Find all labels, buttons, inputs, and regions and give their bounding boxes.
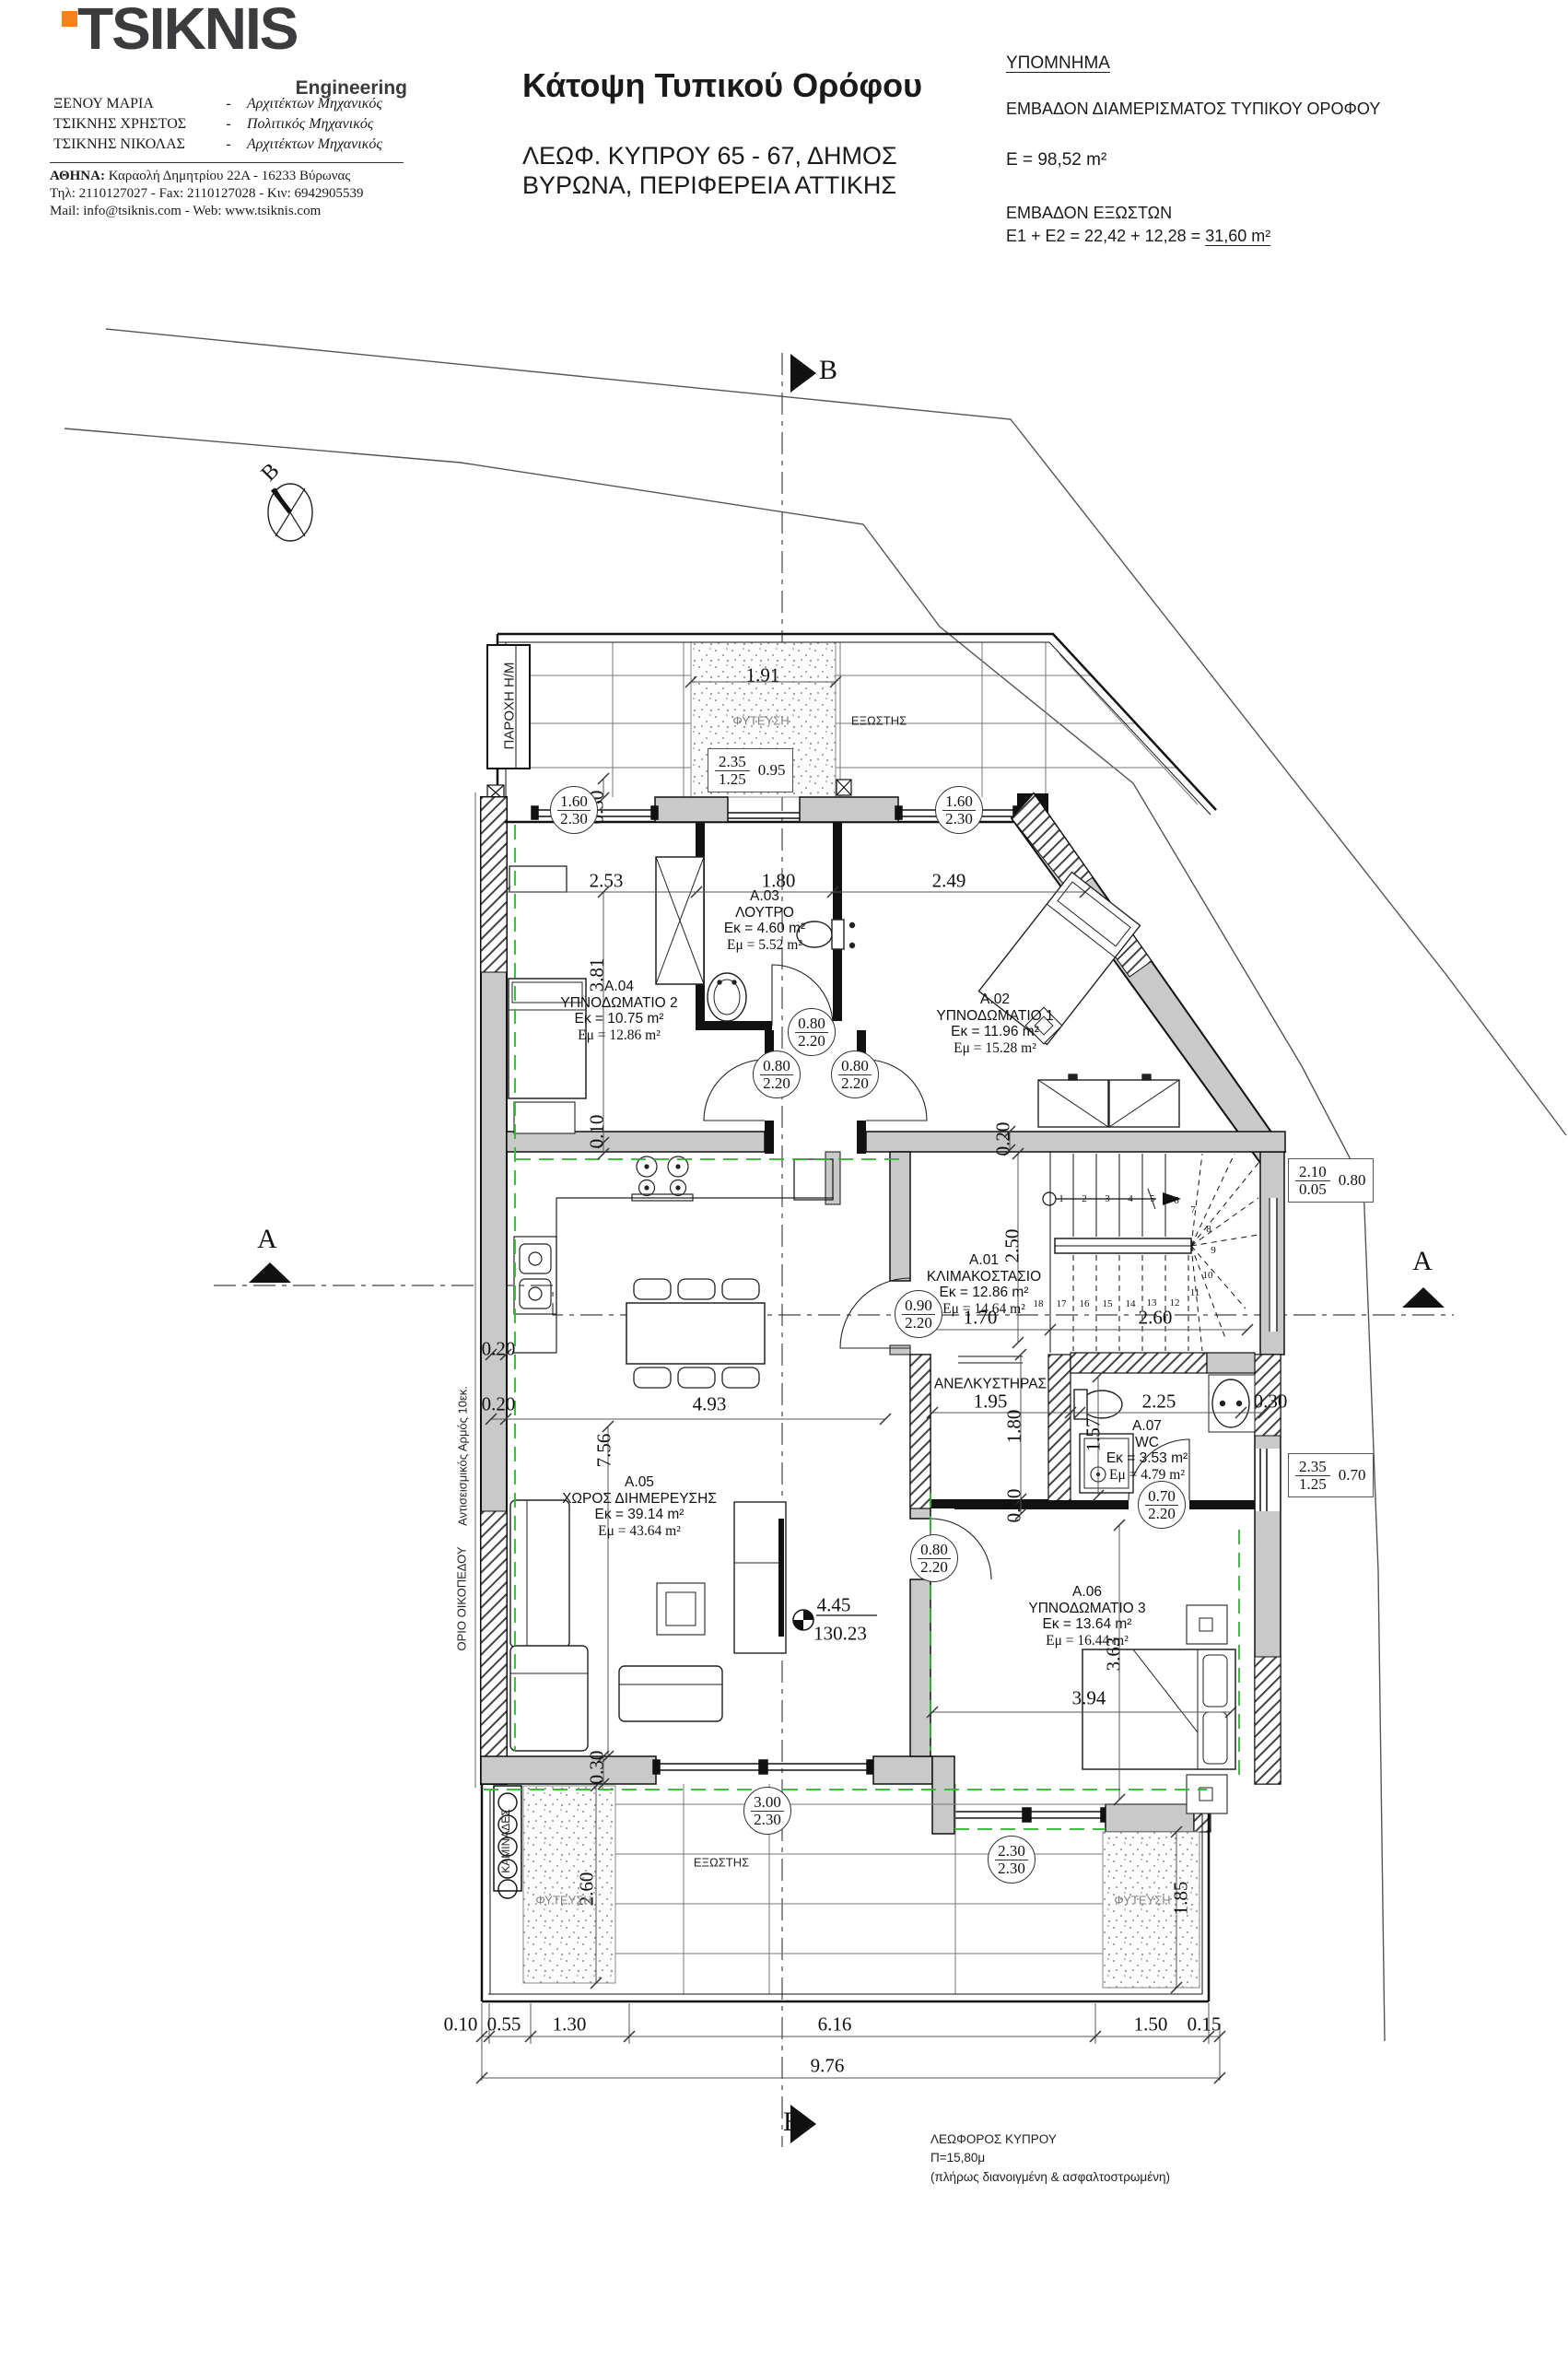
dimension-label: 3.81: [586, 958, 609, 992]
dimension-label: 9.76: [811, 2055, 845, 2078]
room-label: A.06ΥΠΝΟΔΩΜΑΤΙΟ 3Εκ = 13.64 m²Εμ = 16.44…: [1028, 1584, 1145, 1649]
dimension-label: 1.57: [1082, 1418, 1106, 1452]
section-letter: A: [1412, 1246, 1433, 1277]
annotation-label: ΦΥΤΕΥΣΗ: [535, 1894, 591, 1907]
stair-step-number: 17: [1057, 1298, 1067, 1309]
dimension-label: 130.23: [813, 1623, 867, 1646]
stair-step-number: 10: [1203, 1270, 1213, 1281]
dimension-label: 3.63: [1103, 1637, 1126, 1672]
dimension-label: 3.94: [1072, 1687, 1106, 1710]
dimension-label: 0.20: [992, 1122, 1015, 1156]
annotation-label: ΕΞΩΣΤΗΣ: [694, 1856, 749, 1870]
stair-step-number: 9: [1211, 1245, 1216, 1256]
section-letter: B: [819, 355, 837, 386]
dimension-label: 4.45: [817, 1594, 851, 1617]
dimension-label: 0.10: [586, 1115, 609, 1149]
dimension-label: 1.91: [746, 664, 780, 687]
dimension-label: 2.53: [590, 870, 624, 893]
stair-step-number: 8: [1206, 1224, 1211, 1235]
dimension-label: 1.70: [964, 1307, 998, 1330]
dimension-label: 6.16: [818, 2013, 852, 2036]
stair-step-number: 16: [1080, 1298, 1090, 1309]
opening-size-tag: 1.602.30: [935, 786, 983, 834]
opening-size-tag: 0.802.20: [788, 1008, 836, 1056]
stair-step-number: 13: [1147, 1297, 1157, 1309]
opening-size-tag: 1.602.30: [550, 786, 598, 834]
dimension-label: 1.30: [553, 2013, 587, 2036]
dimension-label: 2.25: [1142, 1391, 1176, 1414]
annotation-label: ΚΑΜΙΝΑΔΕΣ: [499, 1809, 512, 1872]
room-label: A.02ΥΠΝΟΔΩΜΑΤΙΟ 1Εκ = 11.96 m²Εμ = 15.28…: [936, 992, 1053, 1056]
window-size-tag: 2.100.050.80: [1288, 1158, 1374, 1203]
opening-size-tag: 0.802.20: [753, 1050, 801, 1098]
opening-size-tag: 0.802.20: [910, 1534, 958, 1582]
opening-size-tag: 0.902.20: [895, 1290, 942, 1338]
dimension-label: 7.56: [593, 1434, 616, 1468]
annotation-label: Αντισεισμικός Αρμός 10εκ.: [456, 1386, 470, 1526]
dimension-label: 0.20: [482, 1393, 516, 1416]
opening-size-tag: 2.302.30: [988, 1836, 1036, 1884]
opening-size-tag: 3.002.30: [743, 1787, 791, 1835]
room-label: A.07WCΕκ = 3.53 m²Εμ = 4.79 m²: [1106, 1418, 1188, 1483]
section-letter: A: [257, 1224, 277, 1255]
dimension-label: 0.10: [444, 2013, 478, 2036]
annotation-label: ΕΞΩΣΤΗΣ: [851, 714, 907, 728]
room-label: A.04ΥΠΝΟΔΩΜΑΤΙΟ 2Εκ = 10.75 m²Εμ = 12.86…: [560, 979, 677, 1043]
dimension-label: 0.15: [1188, 2013, 1222, 2036]
stair-step-number: 14: [1126, 1298, 1136, 1309]
stair-step-number: 12: [1170, 1297, 1180, 1309]
dimension-label: 0.55: [487, 2013, 521, 2036]
window-size-tag: 2.351.250.70: [1288, 1453, 1374, 1497]
stair-step-number: 5: [1150, 1193, 1155, 1204]
stair-step-number: 1: [1059, 1193, 1064, 1204]
street-label: ΛΕΩΦΟΡΟΣ ΚΥΠΡΟΥΠ=15,80μ(πλήρως διανοιγμέ…: [930, 2130, 1170, 2187]
stair-step-number: 18: [1034, 1298, 1044, 1309]
plan-labels-layer: A.03ΛΟΥΤΡΟΕκ = 4.60 m²Εμ = 5.52 m²A.04ΥΠ…: [0, 0, 1568, 2359]
section-letter: B: [783, 2107, 802, 2138]
room-label: A.05ΧΩΡΟΣ ΔΙΗΜΕΡΕΥΣΗΣΕκ = 39.14 m²Εμ = 4…: [562, 1474, 717, 1539]
stair-step-number: 4: [1128, 1193, 1133, 1204]
opening-size-tag: 0.702.20: [1138, 1481, 1186, 1529]
dimension-label: 1.50: [1134, 2013, 1168, 2036]
dimension-label: 0.30: [586, 1751, 609, 1785]
stair-step-number: 6: [1174, 1195, 1179, 1206]
annotation-label: ΦΥΤΕΥΣΗ: [732, 714, 789, 728]
stair-step-number: 3: [1105, 1193, 1110, 1204]
stair-step-number: 7: [1190, 1204, 1196, 1215]
annotation-label: ΠΑΡΟΧΗ Η/Μ: [502, 662, 518, 749]
stair-step-number: 11: [1190, 1287, 1200, 1298]
dimension-label: 0.20: [482, 1338, 516, 1361]
dimension-label: 2.49: [932, 870, 966, 893]
room-label: A.03ΛΟΥΤΡΟΕκ = 4.60 m²Εμ = 5.52 m²: [724, 888, 805, 953]
section-letter: B: [257, 459, 285, 487]
opening-size-tag: 0.802.20: [831, 1050, 879, 1098]
dimension-label: 2.60: [1139, 1307, 1173, 1330]
annotation-label: ΦΥΤΕΥΣΗ: [1114, 1894, 1170, 1907]
stair-step-number: 15: [1103, 1298, 1113, 1309]
dimension-label: 4.93: [693, 1393, 727, 1416]
window-size-tag: 2.351.250.95: [708, 748, 793, 792]
dimension-label: 1.80: [1003, 1410, 1026, 1444]
dimension-label: 1.85: [1170, 1882, 1193, 1916]
dimension-label: 1.80: [762, 870, 796, 893]
dimension-label: 0.30: [1254, 1391, 1288, 1414]
drawing-sheet: TSIKNIS Engineering ΞΕΝΟΥ ΜΑΡΙΑ-Αρχιτέκτ…: [0, 0, 1568, 2359]
stair-step-number: 2: [1082, 1193, 1087, 1204]
annotation-label: ΟΡΙΟ ΟΙΚΟΠΕΔΟΥ: [455, 1546, 469, 1650]
dimension-label: 2.50: [1001, 1229, 1024, 1263]
dimension-label: 0.20: [1003, 1489, 1026, 1523]
